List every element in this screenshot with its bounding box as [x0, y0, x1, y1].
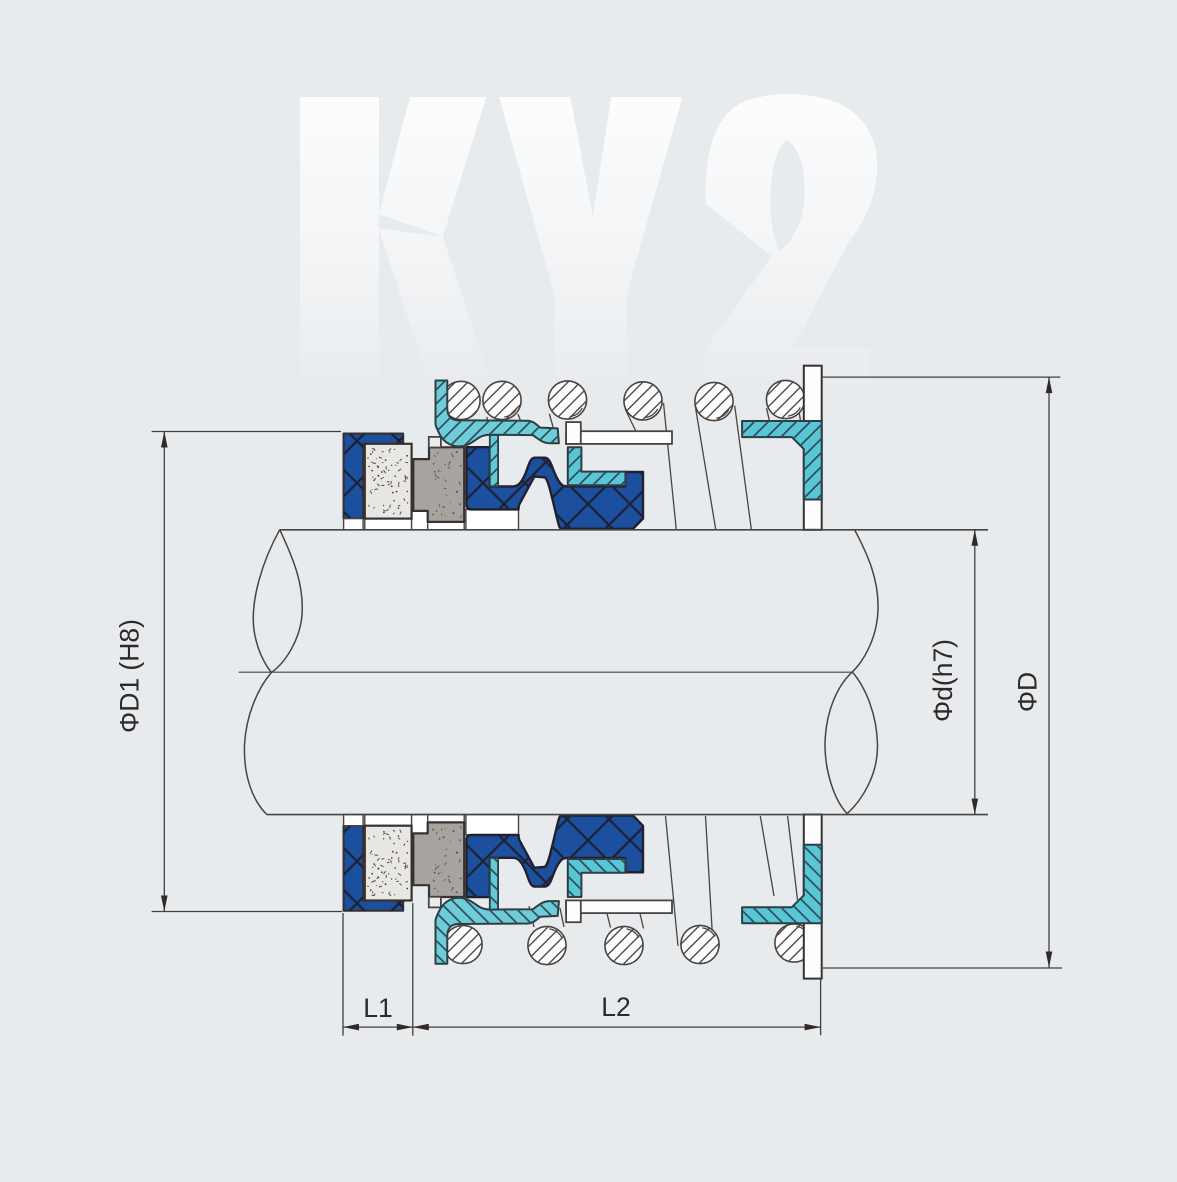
- svg-text:Φd(h7): Φd(h7): [928, 639, 958, 722]
- svg-text:L2: L2: [601, 992, 630, 1022]
- svg-text:ΦD: ΦD: [1013, 672, 1043, 712]
- svg-text:L1: L1: [363, 993, 392, 1023]
- svg-text:ΦD1 (H8): ΦD1 (H8): [115, 619, 145, 733]
